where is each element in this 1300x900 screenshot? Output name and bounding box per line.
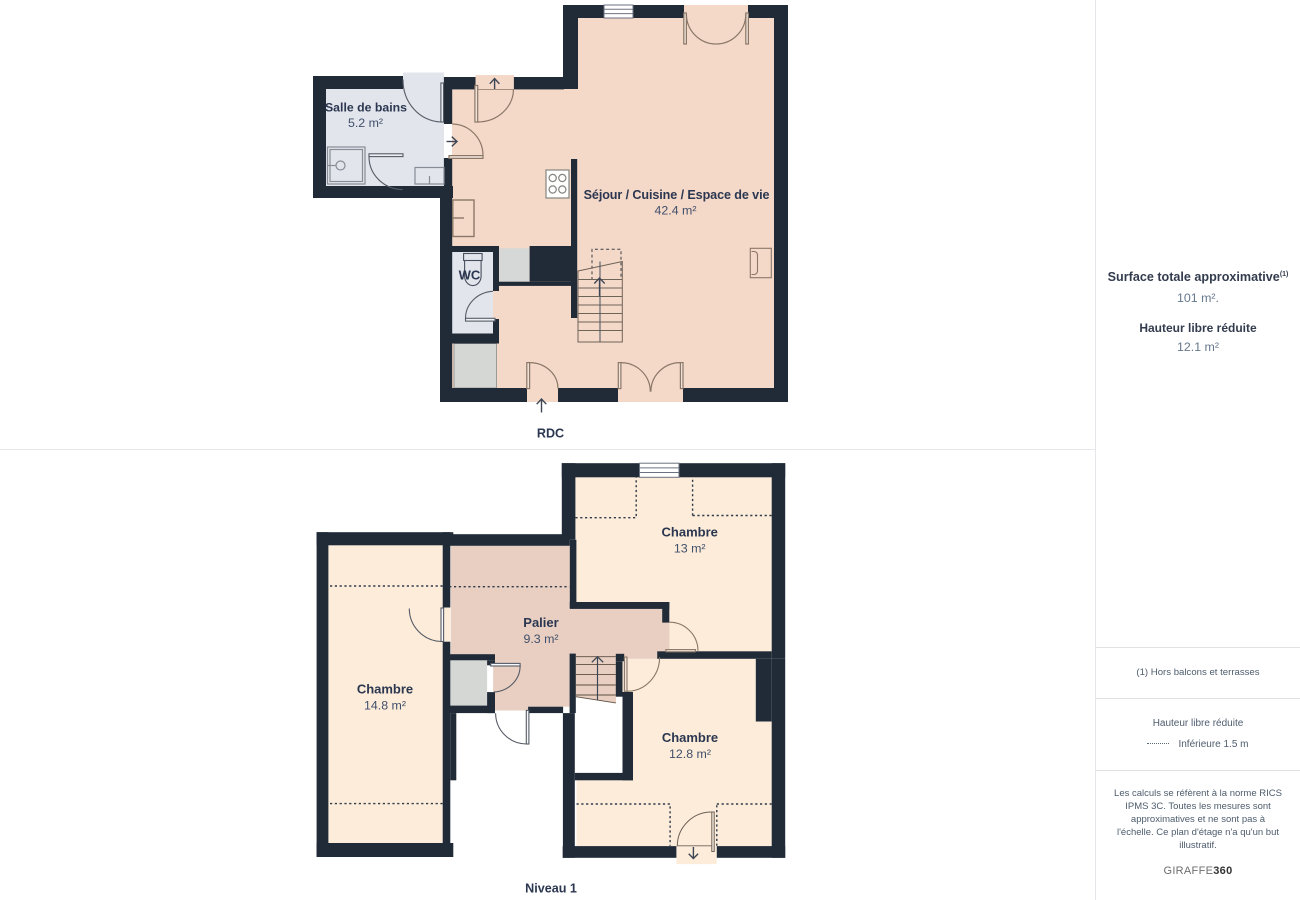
svg-text:WC: WC xyxy=(459,268,481,283)
svg-text:Chambre: Chambre xyxy=(662,730,718,745)
svg-text:9.3 m²: 9.3 m² xyxy=(523,632,558,646)
svg-text:Salle de bains: Salle de bains xyxy=(325,101,407,115)
svg-text:Séjour / Cuisine / Espace de v: Séjour / Cuisine / Espace de vie xyxy=(584,188,770,202)
svg-text:42.4 m²: 42.4 m² xyxy=(654,204,696,218)
svg-text:13 m²: 13 m² xyxy=(674,542,706,556)
svg-text:14.8 m²: 14.8 m² xyxy=(364,699,406,713)
svg-text:Palier: Palier xyxy=(523,615,558,630)
svg-text:Chambre: Chambre xyxy=(662,525,718,540)
svg-text:12.8 m²: 12.8 m² xyxy=(669,747,711,761)
svg-text:RDC: RDC xyxy=(537,427,564,441)
svg-text:5.2 m²: 5.2 m² xyxy=(348,116,383,130)
svg-text:Chambre: Chambre xyxy=(357,682,413,697)
svg-text:Niveau 1: Niveau 1 xyxy=(525,882,577,896)
